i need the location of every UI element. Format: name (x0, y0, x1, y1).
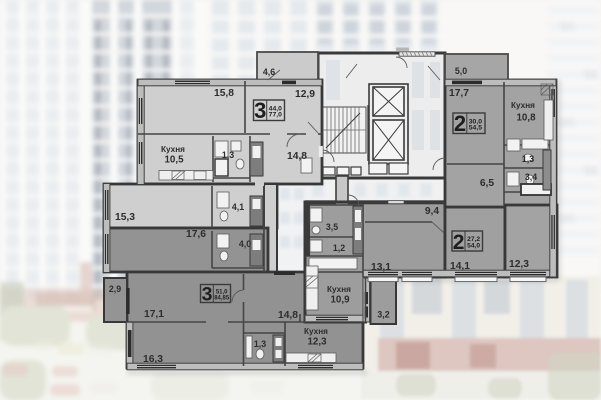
svg-text:12,3: 12,3 (307, 337, 327, 348)
svg-text:3: 3 (254, 98, 266, 123)
svg-text:3,2: 3,2 (377, 310, 389, 320)
svg-text:3: 3 (202, 284, 213, 306)
svg-text:15,3: 15,3 (115, 212, 135, 223)
svg-text:16,3: 16,3 (143, 354, 163, 365)
svg-text:1,3: 1,3 (522, 154, 534, 164)
svg-text:3,4: 3,4 (525, 172, 537, 182)
svg-text:51,0: 51,0 (216, 290, 228, 296)
svg-text:Кухня: Кухня (161, 145, 185, 154)
svg-text:15,8: 15,8 (214, 88, 234, 99)
svg-text:12,3: 12,3 (509, 259, 529, 270)
svg-text:6,5: 6,5 (480, 178, 495, 189)
svg-text:4,1: 4,1 (232, 202, 244, 212)
svg-text:10,5: 10,5 (164, 155, 184, 166)
svg-text:17,7: 17,7 (449, 88, 469, 99)
svg-text:Кухня: Кухня (304, 327, 328, 336)
svg-text:5,0: 5,0 (455, 66, 467, 76)
svg-text:54,0: 54,0 (467, 242, 480, 249)
svg-text:17,1: 17,1 (144, 309, 164, 320)
svg-text:10,9: 10,9 (330, 295, 350, 306)
svg-text:2,9: 2,9 (109, 284, 121, 294)
svg-text:54,5: 54,5 (469, 125, 482, 132)
svg-text:84,85: 84,85 (214, 296, 230, 302)
svg-text:14,8: 14,8 (278, 310, 298, 321)
svg-text:12,9: 12,9 (295, 89, 315, 100)
svg-text:1,3: 1,3 (222, 150, 234, 160)
svg-text:1,2: 1,2 (333, 243, 345, 253)
svg-text:2: 2 (453, 231, 465, 254)
svg-text:10,8: 10,8 (516, 113, 536, 124)
svg-text:9,4: 9,4 (425, 206, 440, 217)
svg-text:77,0: 77,0 (269, 112, 282, 119)
svg-text:17,6: 17,6 (186, 229, 206, 240)
svg-text:2: 2 (454, 111, 466, 136)
svg-text:4,6: 4,6 (263, 67, 275, 77)
svg-text:14,8: 14,8 (287, 151, 307, 162)
svg-text:Кухня: Кухня (511, 101, 535, 110)
svg-text:Кухня: Кухня (327, 285, 351, 294)
svg-text:14,1: 14,1 (450, 261, 470, 272)
svg-text:13,1: 13,1 (371, 262, 391, 273)
svg-text:4,0: 4,0 (239, 239, 251, 249)
svg-text:3,5: 3,5 (326, 222, 338, 232)
svg-text:1,3: 1,3 (254, 339, 266, 349)
